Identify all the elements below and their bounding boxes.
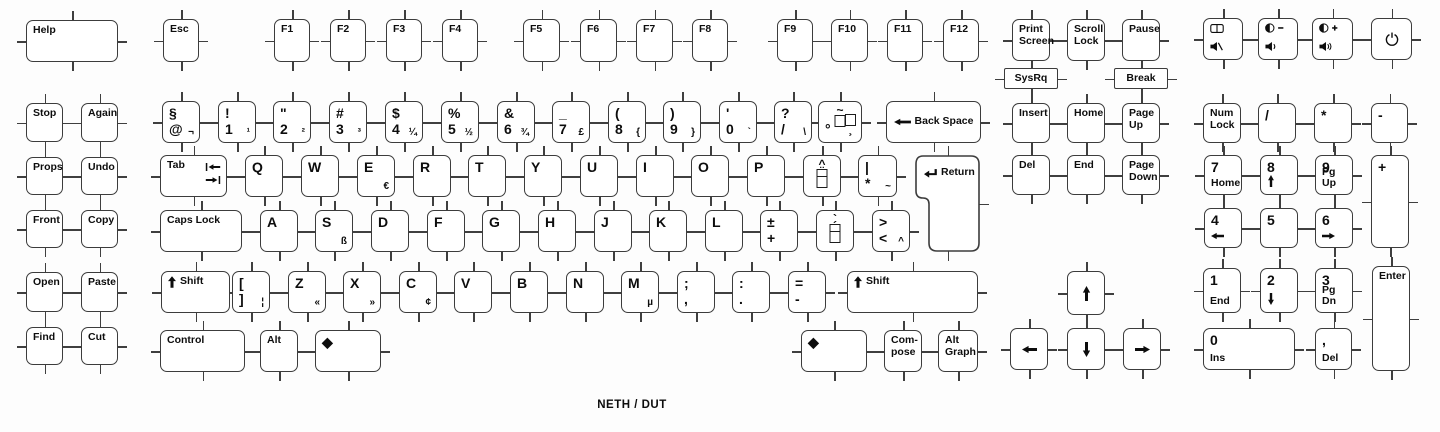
key-numpad-6-label: 6 xyxy=(1322,213,1330,229)
key-power[interactable] xyxy=(1371,18,1412,60)
key-h[interactable]: H xyxy=(538,210,576,252)
key-numpad-divide-label: / xyxy=(1265,108,1269,124)
key-stop[interactable]: Stop xyxy=(26,103,63,142)
key-n[interactable]: N xyxy=(566,271,604,313)
key-u-label: U xyxy=(587,160,597,176)
key-mute-label xyxy=(1210,23,1224,36)
key-f12-label: F12 xyxy=(950,24,968,36)
key-numpad-enter[interactable]: Enter xyxy=(1372,266,1410,371)
key-esc[interactable]: Esc xyxy=(163,19,199,62)
key-f-label: F xyxy=(434,215,443,231)
key-colon-period[interactable]: :. xyxy=(732,271,770,313)
key-right-meta[interactable]: ◆ xyxy=(801,330,867,372)
key-bracket-bar-label: ] xyxy=(239,292,244,308)
key-0-label: 0 xyxy=(726,122,734,138)
key-section-label: § xyxy=(169,106,177,122)
return-arrow-icon xyxy=(924,168,937,178)
key-arrow-right-label xyxy=(1124,329,1160,369)
key-equals-hyphen-label: = xyxy=(795,276,803,292)
key-return[interactable]: Return xyxy=(915,155,980,252)
key-arrow-right[interactable] xyxy=(1123,328,1161,370)
key-numpad-9-label: Pg Up xyxy=(1322,167,1352,191)
key-semicolon-comma-label: , xyxy=(684,292,688,308)
key-break[interactable]: Break xyxy=(1114,68,1168,89)
key-d[interactable]: D xyxy=(371,210,409,252)
key-numpad-7-label: Home xyxy=(1211,178,1240,190)
power-icon xyxy=(1385,32,1399,46)
key-angle-caret-label: ^ xyxy=(898,236,904,247)
key-5-label: 5 xyxy=(448,122,456,138)
key-o[interactable]: O xyxy=(691,155,729,197)
key-paste[interactable]: Paste xyxy=(81,272,118,312)
key-numpad-1-label: End xyxy=(1210,296,1230,308)
key-b-label: B xyxy=(517,276,527,292)
key-undo-label: Undo xyxy=(88,162,115,174)
key-numpad-decimal-label: Del xyxy=(1322,353,1338,365)
key-e-label: E xyxy=(364,160,373,176)
key-numpad-3[interactable]: 3Pg Dn xyxy=(1315,268,1353,313)
key-numpad-0[interactable]: 0Ins xyxy=(1203,328,1295,370)
key-slash-question[interactable]: ?/\ xyxy=(774,101,812,143)
key-9-label: 9 xyxy=(670,122,678,138)
arrow-right-sm-icon xyxy=(1322,232,1335,240)
key-3[interactable]: #3³ xyxy=(329,101,367,143)
key-tab[interactable]: Tab xyxy=(160,155,227,197)
key-plus-plusminus[interactable]: ±+ xyxy=(760,210,798,252)
key-numpad-2[interactable]: 2 xyxy=(1260,268,1298,313)
key-numpad-1[interactable]: 1End xyxy=(1203,268,1241,313)
key-front-label: Front xyxy=(33,215,60,227)
key-slash-question-label: \ xyxy=(803,127,806,138)
key-plus-plusminus-label: ± xyxy=(767,215,775,231)
key-alt-graph-label: Alt Graph xyxy=(945,335,976,359)
key-again-label: Again xyxy=(88,108,117,120)
key-bracket-bar-label: [ xyxy=(239,276,244,292)
key-z-label: Z xyxy=(295,276,304,292)
key-9[interactable]: )9} xyxy=(663,101,701,143)
key-f7-label: F7 xyxy=(643,24,655,36)
key-scroll-lock-label: Scroll Lock xyxy=(1074,24,1103,48)
key-f2-label: F2 xyxy=(337,24,349,36)
key-6-label: & xyxy=(504,106,514,122)
key-s-label: ß xyxy=(341,236,347,247)
key-7-label: 7 xyxy=(559,122,567,138)
key-props-label: Props xyxy=(33,162,63,174)
key-8-label: ( xyxy=(615,106,620,122)
key-f9-label: F9 xyxy=(784,24,796,36)
dead-key-box: ~ xyxy=(835,115,846,127)
key-equals-hyphen[interactable]: =- xyxy=(788,271,826,313)
key-f3[interactable]: F3 xyxy=(386,19,422,62)
split-rect-icon xyxy=(1210,24,1224,33)
key-dead-tilde-degree-cedilla-label: ~ xyxy=(835,115,846,130)
key-f2[interactable]: F2 xyxy=(330,19,366,62)
key-alt-graph[interactable]: Alt Graph xyxy=(938,330,978,372)
key-insert[interactable]: Insert xyxy=(1012,103,1050,143)
key-numpad-multiply-label: * xyxy=(1321,108,1326,124)
key-f10[interactable]: F10 xyxy=(831,19,868,62)
key-8-label: 8 xyxy=(615,122,623,138)
key-find-label: Find xyxy=(33,332,55,344)
key-angle-caret[interactable]: ><^ xyxy=(872,210,910,252)
key-numpad-decimal[interactable]: ,Del xyxy=(1315,328,1352,370)
key-paste-label: Paste xyxy=(88,277,116,289)
key-pipe-asterisk[interactable]: |*~ xyxy=(858,155,897,197)
key-4-label: ¼ xyxy=(409,127,417,138)
key-2-label: " xyxy=(280,106,287,122)
key-dead-circumflex-diaeresis[interactable]: ^¨ xyxy=(803,155,841,197)
key-return-label: Return xyxy=(924,167,975,179)
key-dead-tilde-degree-cedilla[interactable]: ~°¸ xyxy=(818,101,862,143)
key-q[interactable]: Q xyxy=(245,155,283,197)
key-dead-circumflex-diaeresis-label: ¨ xyxy=(817,176,828,191)
key-help[interactable]: Help xyxy=(26,20,118,62)
key-compose[interactable]: Com- pose xyxy=(884,330,922,372)
key-end[interactable]: End xyxy=(1067,155,1105,195)
key-f3-label: F3 xyxy=(393,24,405,36)
key-angle-caret-label: < xyxy=(879,231,887,247)
key-right-meta-label: ◆ xyxy=(808,335,819,351)
backspace-arrow-icon xyxy=(894,118,911,126)
key-5[interactable]: %5½ xyxy=(441,101,479,143)
key-cut-label: Cut xyxy=(88,332,106,344)
key-dead-grave-acute-label: ´ xyxy=(830,231,841,246)
key-z-label: « xyxy=(314,297,320,308)
key-cut[interactable]: Cut xyxy=(81,327,118,365)
key-c[interactable]: C¢ xyxy=(399,271,437,313)
key-f[interactable]: F xyxy=(427,210,465,252)
key-f8[interactable]: F8 xyxy=(692,19,728,62)
key-undo[interactable]: Undo xyxy=(81,157,118,195)
key-props[interactable]: Props xyxy=(26,157,63,195)
contrast-plus-icon xyxy=(1319,23,1338,33)
key-section-label: ¬ xyxy=(188,127,194,138)
key-u[interactable]: U xyxy=(580,155,618,197)
key-print-screen-label: Print Screen xyxy=(1019,24,1054,48)
key-6-label: 6 xyxy=(504,122,512,138)
key-4-label: 4 xyxy=(392,122,400,138)
key-page-up-label: Page Up xyxy=(1129,108,1154,132)
arrow-down-icon xyxy=(1082,342,1091,357)
key-b[interactable]: B xyxy=(510,271,548,313)
key-numpad-plus-label: + xyxy=(1378,160,1386,176)
key-f1-label: F1 xyxy=(281,24,293,36)
key-tab-label xyxy=(205,161,221,174)
key-numpad-8-label xyxy=(1267,175,1275,190)
key-m-label: M xyxy=(628,276,640,292)
key-slash-question-label: ? xyxy=(781,106,790,122)
key-volume-down-label xyxy=(1265,41,1278,55)
key-angle-caret-label: > xyxy=(879,215,887,231)
key-arrow-left-label xyxy=(1011,329,1047,369)
key-section-label: @ xyxy=(169,122,183,138)
key-j-label: J xyxy=(601,215,609,231)
key-alt-label: Alt xyxy=(267,335,281,347)
key-tab-label: Tab xyxy=(167,160,185,172)
key-numpad-multiply[interactable]: * xyxy=(1314,103,1352,143)
key-mute-label xyxy=(1210,41,1223,55)
key-semicolon-comma[interactable]: ;, xyxy=(677,271,715,313)
key-l[interactable]: L xyxy=(705,210,743,252)
key-numpad-4-label: 4 xyxy=(1211,213,1219,229)
key-x-label: » xyxy=(369,297,375,308)
key-right-shift[interactable]: Shift xyxy=(847,271,978,313)
key-numpad-4-label xyxy=(1211,230,1224,243)
key-numpad-minus[interactable]: - xyxy=(1371,103,1408,143)
key-arrow-up[interactable] xyxy=(1067,271,1105,315)
key-left-meta[interactable]: ◆ xyxy=(315,330,381,372)
key-f8-label: F8 xyxy=(699,24,711,36)
key-volume-down-label xyxy=(1265,23,1284,36)
key-m-label: µ xyxy=(647,297,653,308)
key-s-label: S xyxy=(322,215,331,231)
key-f5[interactable]: F5 xyxy=(523,19,560,62)
key-c-label: C xyxy=(406,276,416,292)
key-power-label xyxy=(1372,19,1411,59)
key-2-label: 2 xyxy=(280,122,288,138)
key-f6[interactable]: F6 xyxy=(580,19,617,62)
key-slash-question-label: / xyxy=(781,122,785,138)
key-numpad-divide[interactable]: / xyxy=(1258,103,1296,143)
contrast-minus-icon xyxy=(1265,23,1284,33)
key-7-label: _ xyxy=(559,106,567,122)
key-control-label: Control xyxy=(167,335,204,347)
arrow-up-sm-icon xyxy=(1267,175,1275,187)
key-numpad-1-label: 1 xyxy=(1210,273,1218,289)
key-5-label: ½ xyxy=(465,127,473,138)
key-arrow-up-label xyxy=(1068,272,1104,314)
key-g-label: G xyxy=(489,215,500,231)
key-colon-period-label: . xyxy=(739,292,743,308)
key-p[interactable]: P xyxy=(747,155,785,197)
key-n-label: N xyxy=(573,276,583,292)
key-bracket-bar-label: ¦ xyxy=(261,297,264,308)
key-f6-label: F6 xyxy=(587,24,599,36)
key-numpad-5-label: 5 xyxy=(1267,213,1275,229)
key-page-up[interactable]: Page Up xyxy=(1122,103,1160,143)
key-4-label: $ xyxy=(392,106,400,122)
key-del-label: Del xyxy=(1019,160,1035,172)
key-a[interactable]: A xyxy=(260,210,298,252)
arrow-left-sm-icon xyxy=(1211,232,1224,240)
key-x-label: X xyxy=(350,276,359,292)
key-f11[interactable]: F11 xyxy=(887,19,923,62)
key-volume-up[interactable] xyxy=(1312,18,1353,60)
key-left-shift[interactable]: Shift xyxy=(161,271,230,313)
key-end-label: End xyxy=(1074,160,1094,172)
key-arrow-left[interactable] xyxy=(1010,328,1048,370)
key-j[interactable]: J xyxy=(594,210,632,252)
key-d-label: D xyxy=(378,215,388,231)
key-z[interactable]: Z« xyxy=(288,271,326,313)
key-r[interactable]: R xyxy=(413,155,451,197)
key-i[interactable]: I xyxy=(636,155,674,197)
key-1-label: 1 xyxy=(225,122,233,138)
key-pause[interactable]: Pause xyxy=(1122,19,1160,61)
key-backspace[interactable]: Back Space xyxy=(886,101,981,143)
key-tab-label xyxy=(205,174,221,187)
key-0-label: ` xyxy=(748,127,751,138)
key-equals-hyphen-label: - xyxy=(795,292,800,308)
key-alt[interactable]: Alt xyxy=(260,330,298,372)
key-g[interactable]: G xyxy=(482,210,520,252)
key-caps-lock-label: Caps Lock xyxy=(167,215,220,227)
key-print-screen[interactable]: Print Screen xyxy=(1012,19,1050,61)
key-mute[interactable] xyxy=(1203,18,1243,60)
speaker-high-icon xyxy=(1319,41,1333,52)
key-9-label: } xyxy=(691,127,695,138)
key-e-label: € xyxy=(383,181,389,192)
key-pause-label: Pause xyxy=(1129,24,1160,36)
speaker-mute-icon xyxy=(1210,41,1223,52)
key-numpad-plus[interactable]: + xyxy=(1371,155,1409,248)
key-3-label: 3 xyxy=(336,122,344,138)
key-s[interactable]: Sß xyxy=(315,210,353,252)
key-numpad-8[interactable]: 8 xyxy=(1260,155,1298,195)
key-copy-label: Copy xyxy=(88,215,114,227)
speaker-low-icon xyxy=(1265,41,1278,52)
key-5-label: % xyxy=(448,106,460,122)
key-bracket-bar[interactable]: []¦ xyxy=(232,271,270,313)
key-numpad-minus-label: - xyxy=(1378,108,1383,124)
key-open-label: Open xyxy=(33,277,60,289)
key-f4[interactable]: F4 xyxy=(442,19,478,62)
key-left-meta-label: ◆ xyxy=(322,335,333,351)
key-scroll-lock[interactable]: Scroll Lock xyxy=(1067,19,1105,61)
key-volume-up-label xyxy=(1319,23,1338,36)
layout-caption: NETH / DUT xyxy=(597,399,667,411)
key-v[interactable]: V xyxy=(454,271,492,313)
key-numpad-0-label: Ins xyxy=(1210,353,1225,365)
key-copy[interactable]: Copy xyxy=(81,210,118,248)
key-help-label: Help xyxy=(33,25,56,37)
key-dead-tilde-degree-cedilla-label: ° xyxy=(825,122,831,138)
key-numpad-7[interactable]: 7Home xyxy=(1204,155,1242,195)
key-m[interactable]: Mµ xyxy=(621,271,659,313)
key-7[interactable]: _7£ xyxy=(552,101,590,143)
key-arrow-down[interactable] xyxy=(1067,328,1105,370)
key-open[interactable]: Open xyxy=(26,272,63,312)
key-l-label: L xyxy=(712,215,721,231)
key-volume-down[interactable] xyxy=(1258,18,1298,60)
key-1-label: ¹ xyxy=(247,127,250,138)
key-k[interactable]: K xyxy=(649,210,687,252)
key-again[interactable]: Again xyxy=(81,103,118,142)
key-0[interactable]: '0` xyxy=(719,101,757,143)
key-2-label: ² xyxy=(302,127,305,138)
key-1[interactable]: !1¹ xyxy=(218,101,256,143)
key-0-label: ' xyxy=(726,106,729,122)
key-r-label: R xyxy=(420,160,430,176)
key-numpad-3-label: Pg Dn xyxy=(1322,285,1352,309)
key-esc-label: Esc xyxy=(170,24,189,36)
key-f7[interactable]: F7 xyxy=(636,19,673,62)
tab-out-icon xyxy=(205,176,221,184)
key-control[interactable]: Control xyxy=(160,330,245,372)
key-f12[interactable]: F12 xyxy=(943,19,979,62)
key-numpad-7-label: 7 xyxy=(1211,160,1219,176)
key-c-label: ¢ xyxy=(425,297,431,308)
key-numpad-0-label: 0 xyxy=(1210,333,1218,349)
key-num-lock[interactable]: Num Lock xyxy=(1203,103,1241,143)
key-numpad-9[interactable]: 9Pg Up xyxy=(1315,155,1353,195)
key-dead-grave-acute[interactable]: `´ xyxy=(816,210,854,252)
key-pipe-asterisk-label: ~ xyxy=(885,181,891,192)
key-page-down-label: Page Down xyxy=(1129,160,1158,184)
key-numpad-5[interactable]: 5 xyxy=(1260,208,1298,248)
key-left-shift-label: Shift xyxy=(168,276,203,288)
key-p-label: P xyxy=(754,160,763,176)
shift-arrow-icon xyxy=(168,276,176,288)
key-f9[interactable]: F9 xyxy=(777,19,813,62)
key-numpad-enter-label: Enter xyxy=(1379,271,1406,283)
key-8[interactable]: (8{ xyxy=(608,101,646,143)
key-num-lock-label: Num Lock xyxy=(1210,108,1235,132)
dead-key-box: ¸ xyxy=(845,114,856,126)
key-e[interactable]: E€ xyxy=(357,155,395,197)
key-f4-label: F4 xyxy=(449,24,461,36)
key-f11-label: F11 xyxy=(894,24,912,36)
key-w-label: W xyxy=(308,160,321,176)
key-right-shift-label: Shift xyxy=(854,276,889,288)
key-7-label: £ xyxy=(578,127,584,138)
key-home-label: Home xyxy=(1074,108,1103,120)
key-front[interactable]: Front xyxy=(26,210,63,248)
key-break-label: Break xyxy=(1115,69,1167,88)
key-page-down[interactable]: Page Down xyxy=(1122,155,1160,195)
dead-key-box: ´ xyxy=(830,231,841,243)
key-pipe-asterisk-label: * xyxy=(865,176,870,192)
shift-arrow-icon xyxy=(854,276,862,288)
arrow-left-icon xyxy=(1022,345,1037,354)
key-9-label: ) xyxy=(670,106,675,122)
key-sysrq[interactable]: SysRq xyxy=(1004,68,1058,89)
key-semicolon-comma-label: ; xyxy=(684,276,689,292)
key-home[interactable]: Home xyxy=(1067,103,1105,143)
key-find[interactable]: Find xyxy=(26,327,63,365)
key-stop-label: Stop xyxy=(33,108,56,120)
key-section[interactable]: §@¬ xyxy=(162,101,200,143)
key-w[interactable]: W xyxy=(301,155,339,197)
key-numpad-4[interactable]: 4 xyxy=(1204,208,1242,248)
key-plus-plusminus-label: + xyxy=(767,231,775,247)
key-caps-lock[interactable]: Caps Lock xyxy=(160,210,242,252)
key-insert-label: Insert xyxy=(1019,108,1048,120)
key-o-label: O xyxy=(698,160,709,176)
key-backspace-label: Back Space xyxy=(887,102,980,142)
key-compose-label: Com- pose xyxy=(891,335,918,359)
key-2[interactable]: "2² xyxy=(273,101,311,143)
key-numpad-8-label: 8 xyxy=(1267,160,1275,176)
key-4[interactable]: $4¼ xyxy=(385,101,423,143)
arrow-down-sm-icon xyxy=(1267,293,1275,305)
key-x[interactable]: X» xyxy=(343,271,381,313)
key-y-label: Y xyxy=(531,160,540,176)
key-t-label: T xyxy=(475,160,484,176)
keyboard-layout-diagram: HelpStopAgainPropsUndoFrontCopyOpenPaste… xyxy=(0,0,1440,432)
key-1-label: ! xyxy=(225,106,230,122)
key-numpad-2-label xyxy=(1267,293,1275,308)
key-y[interactable]: Y xyxy=(524,155,562,197)
dead-key-box: ¨ xyxy=(817,176,828,188)
key-t[interactable]: T xyxy=(468,155,506,197)
key-6[interactable]: &6¾ xyxy=(497,101,535,143)
key-arrow-down-label xyxy=(1068,329,1104,369)
key-del[interactable]: Del xyxy=(1012,155,1050,195)
key-f1[interactable]: F1 xyxy=(274,19,310,62)
key-numpad-6[interactable]: 6 xyxy=(1315,208,1353,248)
key-6-label: ¾ xyxy=(521,127,529,138)
